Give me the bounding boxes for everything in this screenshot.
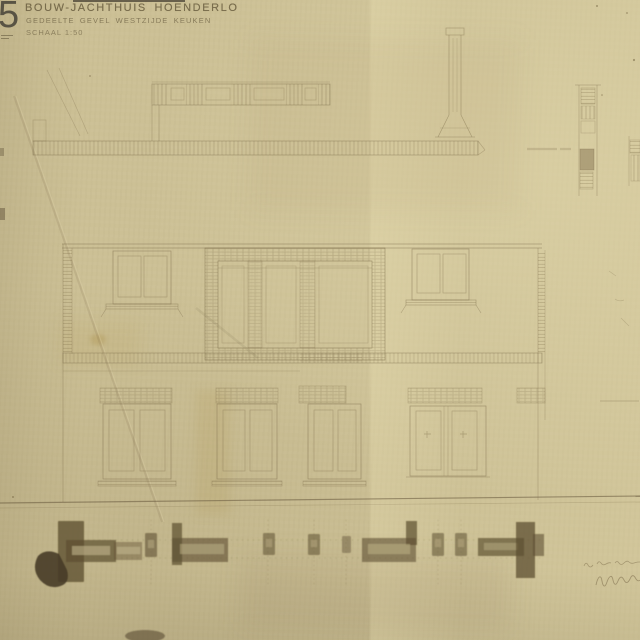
foundation-wall-segment bbox=[362, 521, 417, 562]
foundation-wall-segment bbox=[172, 523, 228, 565]
chimney-section bbox=[435, 28, 475, 137]
handwritten-date bbox=[584, 561, 640, 567]
foundation-pier bbox=[308, 534, 320, 555]
foundation-pier bbox=[145, 533, 157, 557]
foundation-pier bbox=[263, 533, 275, 555]
drawing-sheet: 5 BOUW-JACHTHUIS HOENDERLO GEDEELTE GEVE… bbox=[0, 0, 640, 640]
wall-section-detail bbox=[527, 85, 640, 401]
foundation-pier bbox=[455, 533, 467, 556]
upper-window-right bbox=[401, 249, 481, 313]
bay-window-brick-surround bbox=[205, 248, 385, 360]
string-course-band bbox=[63, 353, 542, 371]
foundation-pier bbox=[432, 533, 444, 556]
foundation-pier bbox=[342, 536, 351, 553]
foundation-corner-pier bbox=[478, 522, 544, 578]
drawing-canvas bbox=[0, 0, 640, 640]
brick-lintels bbox=[100, 386, 545, 403]
kitchen-door-window bbox=[406, 406, 490, 477]
ground-line bbox=[0, 496, 640, 503]
ground-window-2 bbox=[212, 404, 282, 486]
ink-smudge bbox=[125, 630, 165, 640]
signature bbox=[596, 576, 640, 586]
handwritten-note bbox=[584, 561, 640, 586]
facade-elevation bbox=[0, 244, 640, 508]
ground-window-3 bbox=[303, 404, 366, 486]
roof-plan-section bbox=[33, 68, 485, 155]
foundation-plan bbox=[35, 520, 544, 640]
upper-window-left bbox=[101, 251, 183, 317]
foundation-pier-large bbox=[35, 521, 142, 587]
